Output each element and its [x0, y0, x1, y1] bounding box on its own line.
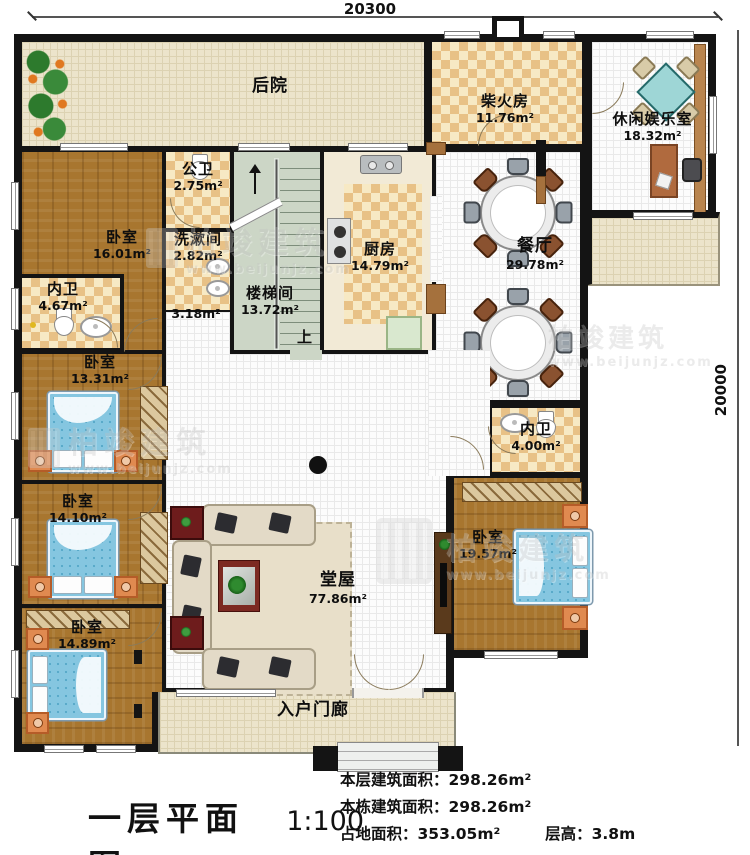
room-name: 卧室: [452, 528, 524, 546]
room-label-bedroom-1957: 卧室 19.57m²: [452, 528, 524, 562]
pillow: [84, 450, 114, 468]
bed: [28, 650, 106, 720]
dimension-top-line: [32, 16, 718, 18]
room-name: 洗漱间: [162, 230, 234, 248]
nightstand: [26, 712, 49, 734]
stair-treads: [280, 158, 320, 350]
pillow: [84, 576, 114, 594]
room-label-backyard: 后院: [210, 76, 330, 97]
fridge: [386, 316, 422, 350]
watermark-logo-large: [376, 518, 432, 584]
side-table: [170, 506, 204, 540]
stat-value: 353.05m²: [418, 825, 501, 843]
sheet-fold: [54, 525, 112, 550]
window: [11, 288, 19, 330]
room-name: 楼梯间: [232, 284, 308, 302]
plant: [228, 576, 246, 594]
cushion: [180, 554, 202, 577]
paper: [655, 172, 673, 190]
room-label-stairwell: 楼梯间 13.72m²: [232, 284, 308, 318]
tv: [440, 563, 447, 607]
room-area: 14.10m²: [33, 510, 123, 525]
window: [11, 650, 19, 698]
room-label-bedroom-1410: 卧室 14.10m²: [33, 492, 123, 526]
room-label-firewood: 柴火房 11.76m²: [455, 92, 555, 126]
plants: [22, 44, 76, 144]
room-name: 内卫: [500, 420, 572, 438]
window: [176, 689, 276, 697]
room-label-kitchen: 厨房 14.79m²: [338, 240, 422, 274]
window: [238, 143, 290, 151]
kitchen-sink: [360, 155, 402, 174]
door-jamb: [426, 142, 446, 155]
wall-stub: [134, 650, 142, 664]
plant: [439, 539, 450, 550]
room-name: 休闲娱乐室: [595, 110, 710, 128]
pillow: [32, 656, 48, 684]
dimension-right-line: [737, 30, 739, 746]
floor-plan: 20300 20000: [0, 0, 750, 855]
room-area: 11.76m²: [455, 110, 555, 125]
pillow: [32, 686, 48, 714]
up-text: 上: [290, 328, 320, 346]
terrace: [584, 212, 720, 286]
sheet-fold: [76, 657, 101, 712]
window: [44, 745, 84, 753]
room-area: 77.86m²: [290, 591, 386, 606]
room-label-washroom: 洗漱间 2.82m²: [162, 230, 234, 264]
chair: [507, 380, 529, 397]
room-name: 入户门廊: [248, 700, 378, 721]
office-chair: [682, 158, 702, 182]
door-jamb: [536, 176, 546, 204]
window: [348, 143, 408, 151]
room-name: 卧室: [55, 353, 145, 371]
floor-drain: [30, 322, 36, 328]
sofa: [202, 648, 316, 690]
pillow: [53, 576, 83, 594]
room-name: 卧室: [33, 492, 123, 510]
room-label-bedroom-1489: 卧室 14.89m²: [42, 618, 132, 652]
burner: [334, 226, 346, 238]
chair: [507, 158, 529, 175]
room-area: 14.89m²: [42, 636, 132, 651]
stair-rail: [274, 158, 279, 350]
window: [96, 745, 136, 753]
room-area: 2.75m²: [166, 178, 230, 193]
chair: [507, 288, 529, 305]
pillow: [53, 450, 83, 468]
room-area: 4.00m²: [500, 438, 572, 453]
bed: [48, 520, 118, 598]
window: [484, 651, 558, 659]
stat-value: 298.26m²: [449, 771, 532, 789]
desk: [650, 144, 678, 198]
door-jamb: [426, 284, 446, 314]
window: [11, 518, 19, 566]
room-name: 内卫: [28, 280, 98, 298]
nightstand: [114, 576, 138, 598]
cushion: [268, 656, 291, 678]
stat-value: 298.26m²: [449, 798, 532, 816]
room-label-bedroom-1331: 卧室 13.31m²: [55, 353, 145, 387]
nightstand: [562, 504, 588, 528]
chair: [556, 332, 573, 354]
dimension-right: 20000: [712, 364, 730, 416]
room-label-hall: 3.18m²: [164, 306, 228, 321]
pillow: [572, 568, 588, 598]
stat-label: 占地面积：: [340, 825, 418, 843]
room-label-bedroom-16: 卧室 16.01m²: [82, 228, 162, 262]
nightstand: [114, 450, 138, 472]
wardrobe: [140, 512, 168, 584]
sheet-fold: [54, 397, 112, 423]
window: [60, 143, 128, 151]
cushion: [216, 656, 239, 678]
window: [11, 392, 19, 440]
window: [646, 31, 694, 39]
chair: [556, 202, 573, 224]
window: [444, 31, 480, 39]
wardrobe: [140, 386, 168, 460]
nightstand: [562, 606, 588, 630]
stair-opening: [290, 350, 322, 360]
room-label-bath-400: 内卫 4.00m²: [500, 420, 572, 454]
room-name: 厨房: [338, 240, 422, 258]
room-area: 19.57m²: [452, 546, 524, 561]
room-label-dining: 餐厅 29.78m²: [480, 236, 590, 272]
room-area: 4.67m²: [28, 298, 98, 313]
sink: [206, 280, 230, 297]
window: [633, 212, 693, 220]
stat-label: 本层建筑面积：: [340, 771, 449, 789]
cushion: [268, 512, 291, 534]
sink-bowl: [368, 161, 377, 170]
room-name: 餐厅: [480, 236, 590, 257]
room-area: 29.78m²: [480, 257, 590, 272]
side-table: [170, 616, 204, 650]
room-name: 公卫: [166, 160, 230, 178]
chimney: [492, 16, 524, 42]
column: [309, 456, 327, 474]
stairs-up-label: 上: [290, 328, 320, 346]
wall-stub: [536, 140, 546, 176]
stat-label: 层高：: [545, 825, 592, 843]
cushion: [214, 512, 237, 534]
nightstand: [28, 576, 52, 598]
room-name: 堂屋: [290, 570, 386, 591]
sink-bowl: [385, 161, 394, 170]
window: [543, 31, 575, 39]
room-label-main-hall: 堂屋 77.86m²: [290, 570, 386, 606]
room-area: 16.01m²: [82, 246, 162, 261]
sofa: [202, 504, 316, 546]
kitchen-opening: [430, 196, 442, 282]
stat-floor-area: 本层建筑面积：298.26m²: [340, 768, 531, 790]
room-name: 卧室: [42, 618, 132, 636]
wall-stub: [134, 704, 142, 718]
stat-building-area: 本栋建筑面积：298.26m²: [340, 795, 531, 817]
stat-value: 3.8m: [592, 825, 636, 843]
pillow: [572, 536, 588, 566]
porch-pillar: [313, 746, 338, 771]
bed: [514, 530, 592, 604]
room-label-porch: 入户门廊: [248, 700, 378, 721]
room-name: 柴火房: [455, 92, 555, 110]
room-area: 13.72m²: [232, 302, 308, 317]
room-label-bath-467: 内卫 4.67m²: [28, 280, 98, 314]
nightstand: [28, 450, 52, 472]
room-name: 卧室: [82, 228, 162, 246]
room-label-leisure: 休闲娱乐室 18.32m²: [595, 110, 710, 144]
plan-title: 一层平面图: [88, 792, 274, 855]
stat-footprint-row: 占地面积：353.05m² 层高：3.8m: [340, 822, 635, 844]
room-label-bath-275: 公卫 2.75m²: [166, 160, 230, 194]
window: [709, 96, 717, 154]
stat-label: 本栋建筑面积：: [340, 798, 449, 816]
title-block: 一层平面图 1:100: [88, 792, 364, 855]
window: [11, 182, 19, 230]
tv-cabinet: [434, 532, 452, 634]
wardrobe: [462, 482, 582, 502]
room-area: 18.32m²: [595, 128, 710, 143]
room-area: 2.82m²: [162, 248, 234, 263]
bed: [48, 392, 118, 472]
stair-arrow-head: [249, 164, 261, 173]
room-area: 14.79m²: [338, 258, 422, 273]
room-area: 13.31m²: [55, 371, 145, 386]
room-bedroom-1957: [446, 472, 588, 658]
room-area: 3.18m²: [164, 306, 228, 321]
room-stairwell: [230, 146, 324, 358]
chair: [464, 202, 481, 224]
room-name: 后院: [210, 76, 330, 97]
